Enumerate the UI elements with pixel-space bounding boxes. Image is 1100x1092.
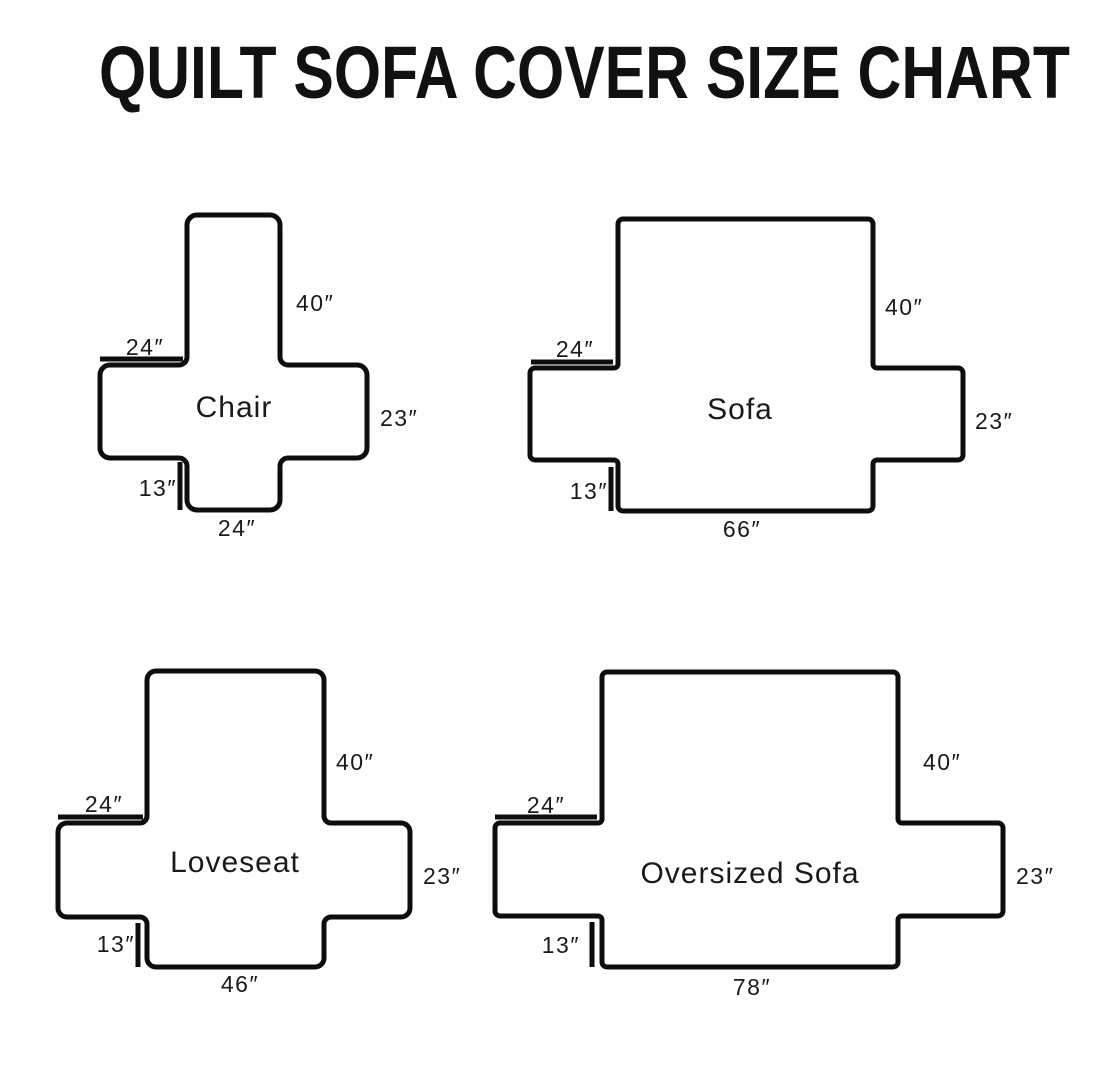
- oversized-sofa-seat-front-width-label: 78″: [733, 974, 771, 1000]
- oversized-sofa-arm-side-height-label: 23″: [1016, 863, 1054, 889]
- chair-arm-top-width-label: 24″: [126, 334, 164, 360]
- sofa-label: Sofa: [707, 393, 773, 426]
- chair-label: Chair: [196, 391, 273, 424]
- chair-cover-outline: [100, 215, 367, 510]
- loveseat-label: Loveseat: [170, 846, 300, 879]
- loveseat-arm-top-width-label: 24″: [85, 791, 123, 817]
- chair-arm-side-height-label: 23″: [380, 405, 418, 431]
- sofa-cover-outline: [530, 219, 963, 511]
- oversized-sofa-arm-top-width-label: 24″: [527, 792, 565, 818]
- loveseat-arm-side-height-label: 23″: [423, 863, 461, 889]
- sofa-back-height-label: 40″: [885, 294, 923, 320]
- loveseat-back-height-label: 40″: [336, 749, 374, 775]
- loveseat-seat-front-width-label: 46″: [221, 971, 259, 997]
- sofa-arm-top-width-label: 24″: [556, 336, 594, 362]
- size-chart-canvas: Chair 40″ 24″ 23″ 13″ 24″ Sofa 40″ 24″ 2…: [0, 0, 1100, 1092]
- oversized-sofa-front-skirt-height-label: 13″: [542, 932, 580, 958]
- sofa-seat-front-width-label: 66″: [723, 516, 761, 542]
- chair-front-skirt-height-label: 13″: [139, 475, 177, 501]
- oversized-sofa-label: Oversized Sofa: [640, 857, 859, 890]
- sofa-front-skirt-height-label: 13″: [570, 478, 608, 504]
- loveseat-diagram: Loveseat 40″ 24″ 23″ 13″ 46″: [58, 671, 461, 997]
- sofa-diagram: Sofa 40″ 24″ 23″ 13″ 66″: [530, 219, 1013, 542]
- oversized-sofa-back-height-label: 40″: [923, 749, 961, 775]
- chair-back-height-label: 40″: [296, 290, 334, 316]
- chair-diagram: Chair 40″ 24″ 23″ 13″ 24″: [100, 215, 418, 541]
- loveseat-front-skirt-height-label: 13″: [97, 931, 135, 957]
- chair-seat-front-width-label: 24″: [218, 515, 256, 541]
- oversized-sofa-diagram: Oversized Sofa 40″ 24″ 23″ 13″ 78″: [495, 672, 1054, 1000]
- sofa-arm-side-height-label: 23″: [975, 408, 1013, 434]
